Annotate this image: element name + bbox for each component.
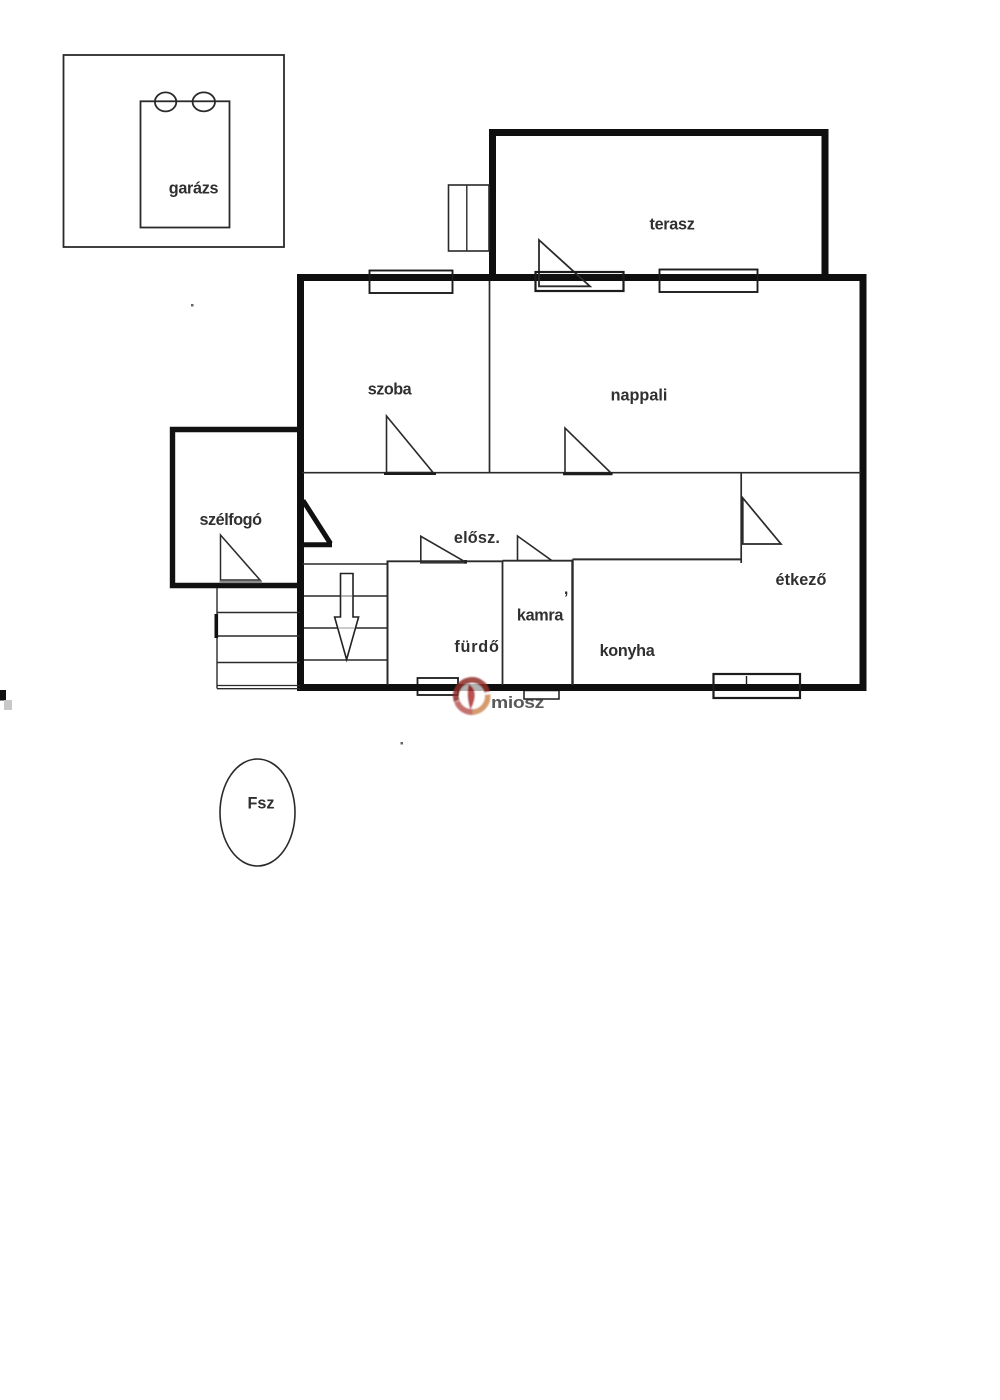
svg-text:nappali: nappali: [611, 387, 668, 405]
svg-text:konyha: konyha: [600, 642, 656, 660]
svg-text:miosz: miosz: [491, 694, 544, 712]
svg-text:Fsz: Fsz: [248, 795, 275, 813]
svg-text:fürdő: fürdő: [454, 638, 499, 656]
svg-text:elősz.: elősz.: [454, 529, 500, 547]
svg-text:terasz: terasz: [650, 216, 695, 234]
svg-text:garázs: garázs: [169, 180, 219, 198]
svg-text:,: ,: [564, 580, 568, 598]
svg-text:szoba: szoba: [368, 381, 413, 399]
svg-text:szélfogó: szélfogó: [199, 511, 262, 529]
svg-text:étkező: étkező: [776, 571, 827, 589]
svg-text:kamra: kamra: [517, 607, 564, 625]
